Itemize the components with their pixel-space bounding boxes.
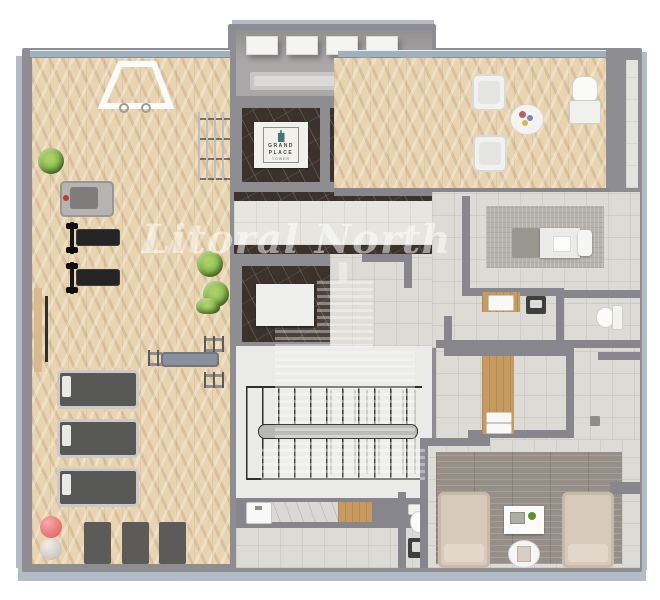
pedicure-chair-basin-icon xyxy=(569,100,601,124)
exercise-mat-icon xyxy=(122,522,149,564)
logo-line1: GRAND xyxy=(268,143,294,149)
weight-bench-icon xyxy=(76,229,120,246)
massage-table-pillow xyxy=(578,230,592,256)
logo-frame: GRAND PLACE TOWER xyxy=(263,127,299,163)
dumbbell-pair-icon xyxy=(204,372,224,388)
edge-strip xyxy=(626,60,638,188)
barbell-plate xyxy=(66,223,78,229)
faucet-icon xyxy=(255,506,262,510)
logo-line2: PLACE xyxy=(268,150,294,156)
wall xyxy=(452,348,574,356)
sitting-room-window-band xyxy=(338,50,606,57)
vent-icon xyxy=(246,36,278,55)
plant-icon xyxy=(196,298,220,314)
flat-bench-icon xyxy=(161,352,219,367)
counter-marble-top xyxy=(268,502,338,522)
wall xyxy=(436,340,640,348)
elevator-lobby-floor xyxy=(234,201,432,245)
plant-icon xyxy=(38,148,64,174)
wall xyxy=(444,316,452,356)
watermark-building-icon xyxy=(255,262,431,484)
side-table-frame xyxy=(517,546,531,562)
flower-dot xyxy=(527,115,533,121)
wall xyxy=(598,352,640,360)
stability-ball-gray-icon xyxy=(40,538,62,560)
treadmill-icon xyxy=(57,419,139,458)
kitchenette-floor xyxy=(436,348,640,440)
machine-accent-dot xyxy=(63,195,69,201)
plant-icon xyxy=(197,251,223,277)
wall xyxy=(566,348,574,432)
barbell-rack-icon xyxy=(198,112,230,180)
wall xyxy=(398,492,406,568)
island-sink xyxy=(486,412,512,423)
dumbbell-icon xyxy=(148,350,162,366)
armchair-icon xyxy=(472,74,506,111)
floor-drain-icon xyxy=(590,416,600,426)
barbell-plate xyxy=(66,247,78,253)
exercise-mat-icon xyxy=(84,522,111,564)
wall xyxy=(556,288,564,348)
counter-wood-top xyxy=(338,502,372,522)
vent-icon xyxy=(286,36,318,55)
grand-place-building-icon xyxy=(278,130,285,142)
weight-bench-icon xyxy=(76,269,120,286)
elevator-logo-card: GRAND PLACE TOWER xyxy=(254,122,308,168)
floor-plan: GRAND PLACE TOWER GRAND PLACE TOWER xyxy=(0,0,660,600)
lobby-marble-band xyxy=(234,245,432,254)
massage-table-towel xyxy=(512,228,540,258)
lounge-armchair-icon xyxy=(562,492,614,568)
flower-dot xyxy=(519,111,526,118)
folded-towel xyxy=(553,236,571,252)
armchair-icon xyxy=(473,135,507,172)
flower-dot xyxy=(522,120,528,126)
treadmill-icon xyxy=(57,370,139,409)
wall xyxy=(610,482,640,494)
gym-window-band xyxy=(30,50,230,57)
wall xyxy=(428,438,490,446)
barbell-plate xyxy=(66,287,78,293)
lounge-armchair-icon xyxy=(438,492,490,568)
exercise-mat-icon xyxy=(159,522,186,564)
wall xyxy=(564,290,640,298)
toilet-tank xyxy=(612,305,623,330)
barbell-plate xyxy=(66,263,78,269)
wall xyxy=(462,196,470,292)
trapeze-rack-icon xyxy=(90,58,174,114)
dumbbell-pair-icon xyxy=(204,336,224,352)
sink-icon xyxy=(488,295,514,311)
scale-machine-icon xyxy=(526,296,546,314)
wall-barre-icon xyxy=(45,296,48,362)
sitting-room-floor xyxy=(334,58,606,188)
logo-subtitle: TOWER xyxy=(268,157,294,161)
treadmill-icon xyxy=(57,468,139,507)
table-plant-icon xyxy=(528,512,536,520)
stability-ball-pink-icon xyxy=(40,516,62,538)
island-sink xyxy=(486,423,512,434)
table-books xyxy=(510,512,525,524)
wall-wood-panel xyxy=(34,288,42,372)
exercise-machine-seat xyxy=(70,187,98,209)
